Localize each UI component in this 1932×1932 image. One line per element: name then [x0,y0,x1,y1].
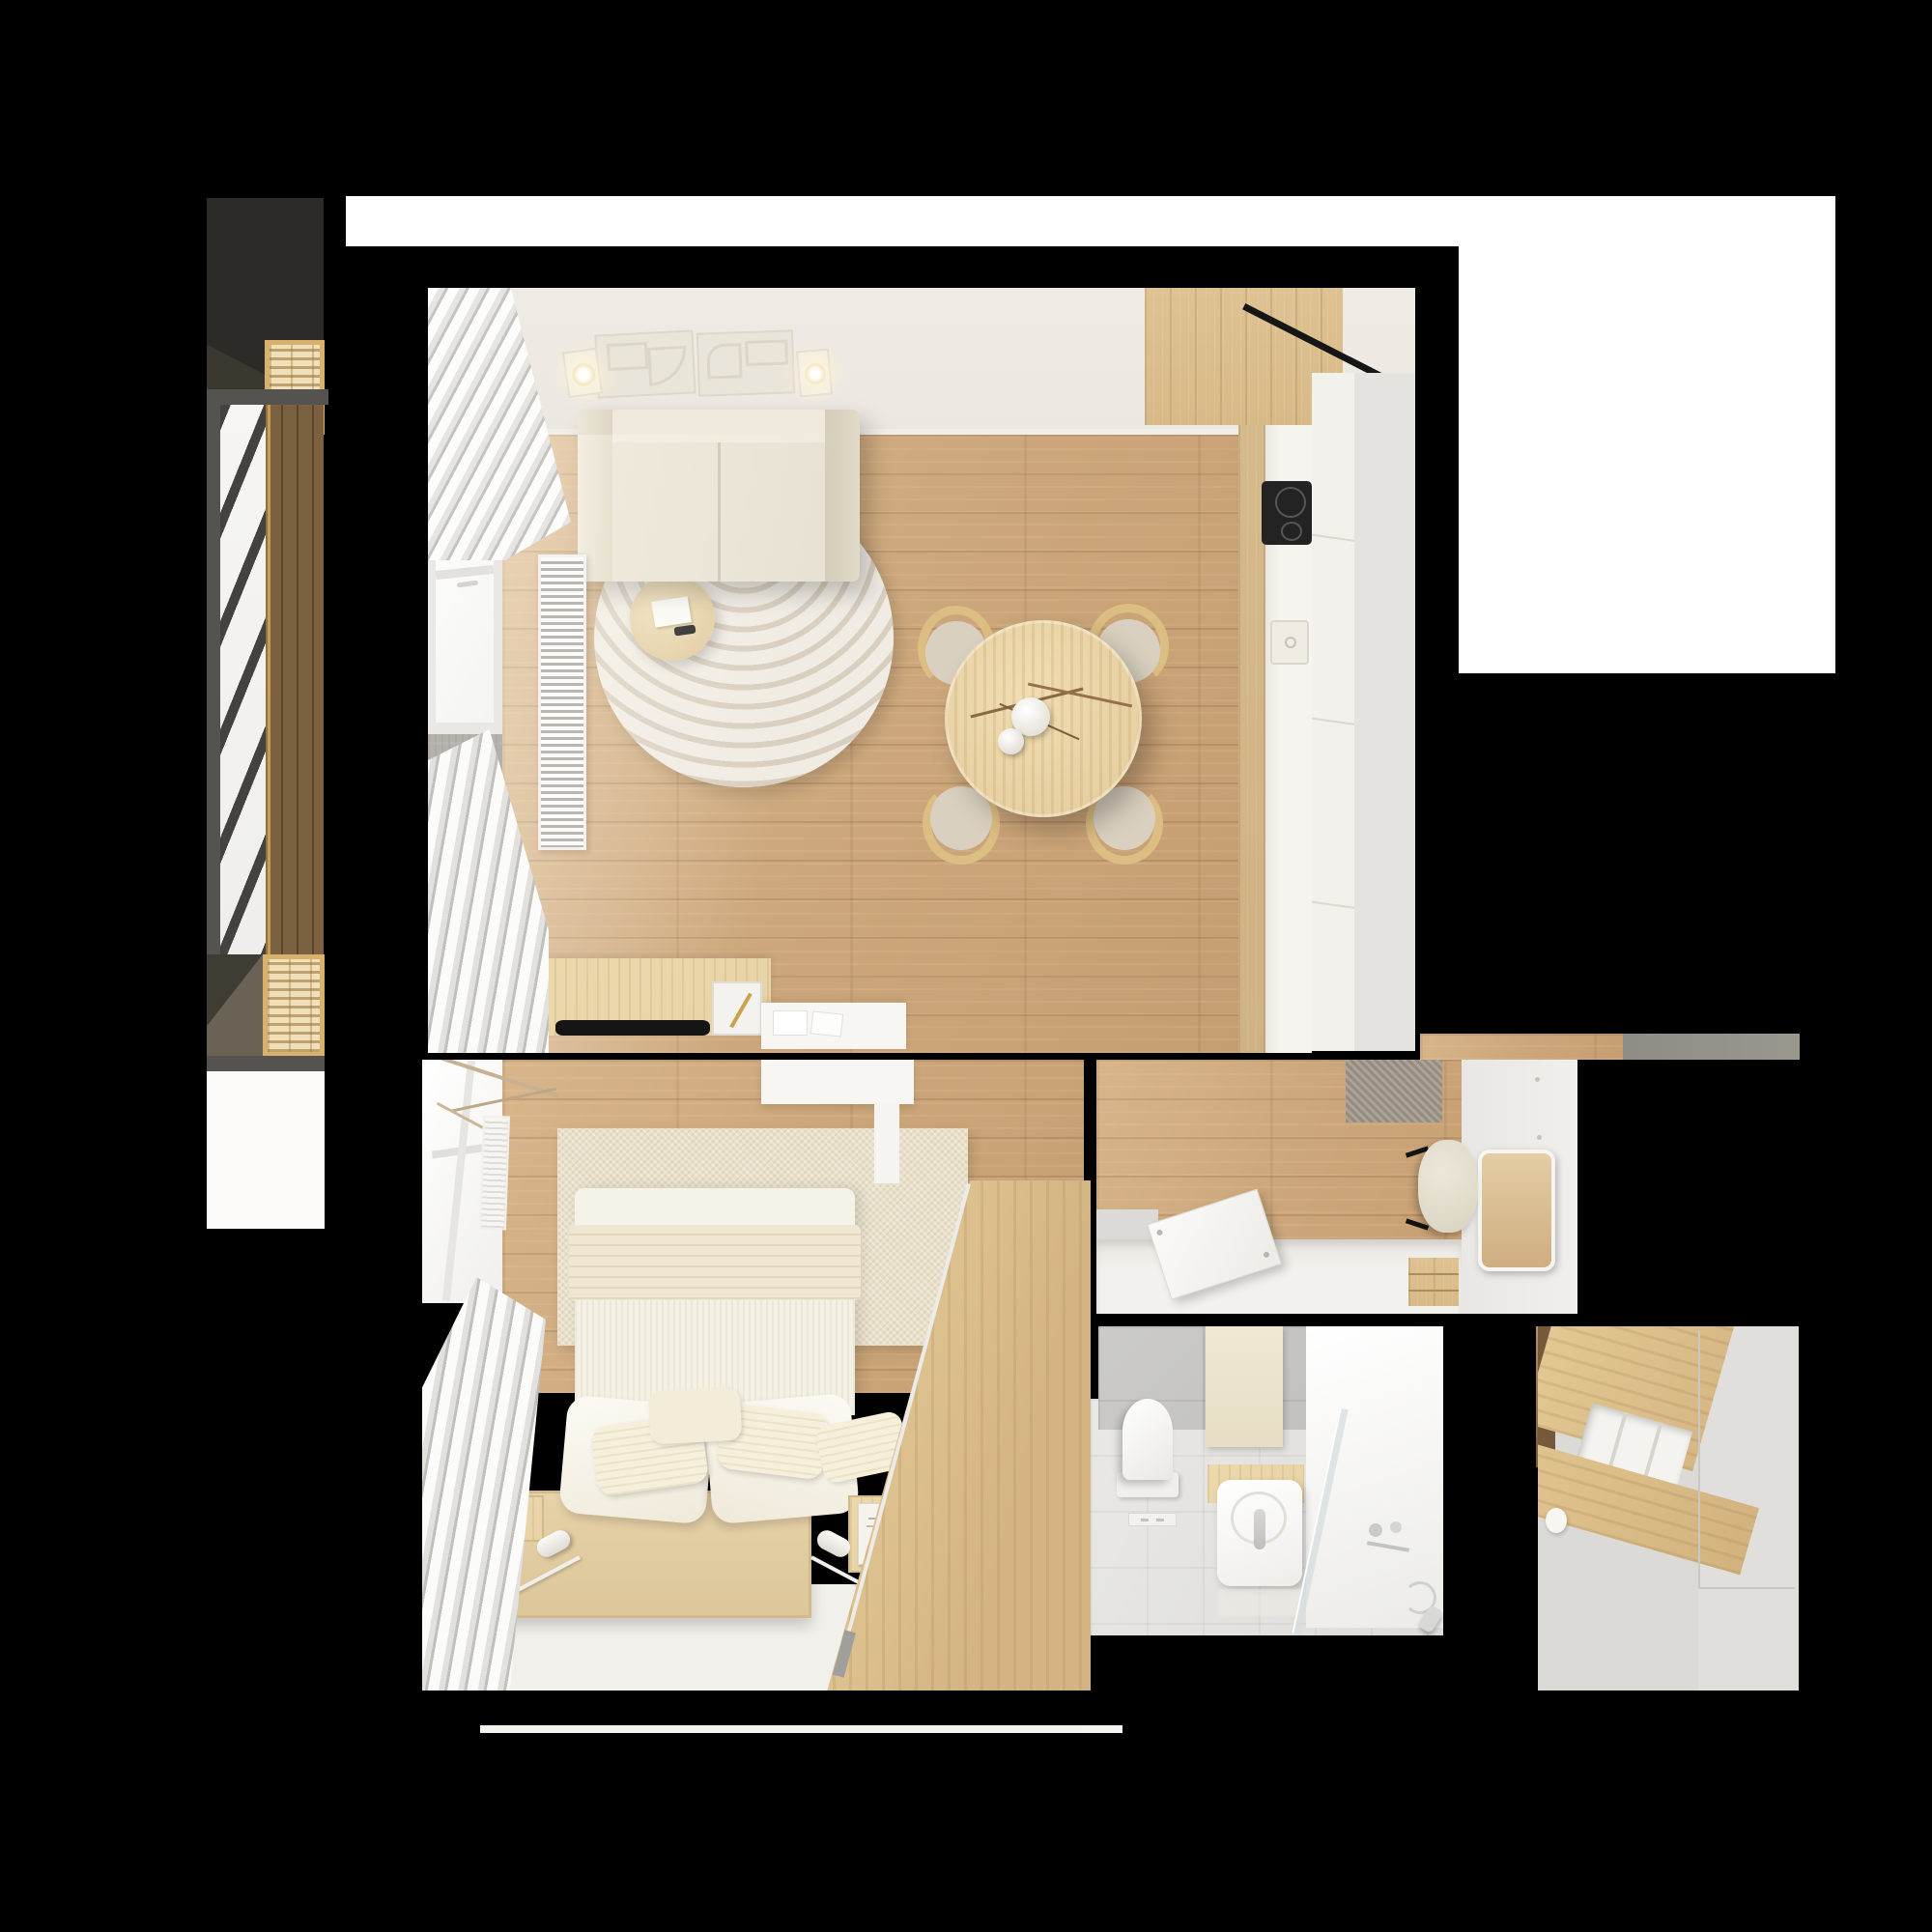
slab-edge-line-bath [1082,1725,1121,1733]
tv-cabinet [761,1060,914,1104]
balcony-shadow-facet [207,954,263,1057]
radiator-grille [538,554,586,850]
hallway [1096,1060,1577,1314]
bedroom-radiator [479,1116,510,1231]
ceiling-art-panel-1 [594,329,696,398]
drawer-line [1408,1290,1459,1292]
induction-cooktop [1262,481,1312,545]
door-hinge [1263,1251,1270,1259]
wall-hook [1535,1077,1540,1082]
balcony-planter-bottom [263,954,325,1057]
doormat [1346,1060,1442,1122]
desk [761,1003,906,1049]
duvet-striped-band [569,1225,861,1300]
towel [1206,1326,1283,1447]
gray-concrete-band [1623,1034,1800,1060]
balcony-railing [220,405,266,955]
flush-button [1156,1519,1164,1521]
spotlight-bulb [804,362,827,385]
spotlight-right [796,349,833,398]
bedroom [422,1060,1091,1690]
bathroom [1091,1326,1538,1729]
sink-faucet [1254,1509,1265,1549]
spotlight-bulb [571,361,597,387]
closet-floor-seam-v [1698,1330,1700,1589]
toilet-seat [1122,1399,1173,1480]
railing-left-bar [207,405,220,959]
balcony-deck [266,405,324,955]
burner-small [1281,522,1302,541]
drawer-unit [1408,1258,1459,1306]
closet-floor-seam-h [1698,1587,1795,1589]
kitchen-sink [1270,620,1309,665]
hallway-mirror [1478,1150,1555,1271]
table-vase-small [998,728,1024,754]
bedroom-window-bar [442,1060,475,1300]
storage-bench [1096,1239,1462,1314]
hallway-top-wood-strip [1420,1034,1623,1060]
desk-paper-2 [810,1010,843,1037]
art-shape [607,342,648,371]
fixture-knob [1390,1521,1402,1533]
panel-seam-3 [1312,900,1354,910]
panel-seam-2 [1312,717,1354,726]
bed-duvet [575,1188,855,1415]
burner-large [1275,487,1306,518]
gold-pen [729,993,752,1029]
living-room [428,288,1415,1053]
closet [1538,1326,1799,1690]
upper-right-white-area [1459,196,1835,673]
hand-shower [1402,1579,1444,1634]
fixture-bar [1367,1541,1409,1552]
railing-bottom-bar [207,1056,325,1071]
railing-top-bar [207,389,328,405]
fixture-knob [1369,1523,1382,1537]
slab-edge-line-bottom [480,1725,1122,1733]
wall-hook [1537,1135,1542,1140]
art-shape [706,343,742,379]
sideboard-black-tray [555,1020,710,1036]
right-wall-face [1354,373,1415,1051]
tv-cabinet-leg [874,1104,899,1183]
sideboard-gadget [712,981,762,1036]
drawer-line [1408,1273,1459,1275]
panel-seam-1 [1312,533,1354,543]
kitchen-tall-panel [1312,373,1354,1051]
pillow-small-3 [648,1387,743,1445]
balcony [207,198,326,1229]
balcony-white-block [207,1071,325,1229]
sink-drain [1285,637,1296,648]
art-shape [745,339,788,366]
sink-reflection [1219,1589,1301,1616]
flush-plate [1128,1513,1177,1526]
balcony-shadow-block [207,954,263,1057]
flush-button [1141,1519,1149,1521]
desk-paper-1 [773,1010,808,1036]
apartment-render [0,0,1932,1932]
top-white-strip [346,196,1459,246]
spotlight-left [562,348,603,399]
pouf [1418,1140,1478,1233]
door-hinge [1156,1229,1164,1236]
shower-fixtures [1367,1520,1411,1560]
ceiling-art-panel-2 [696,329,795,396]
closet-white-object [1546,1508,1567,1533]
art-shape [647,346,688,386]
vessel-sink [1217,1480,1302,1586]
toilet [1117,1399,1179,1501]
